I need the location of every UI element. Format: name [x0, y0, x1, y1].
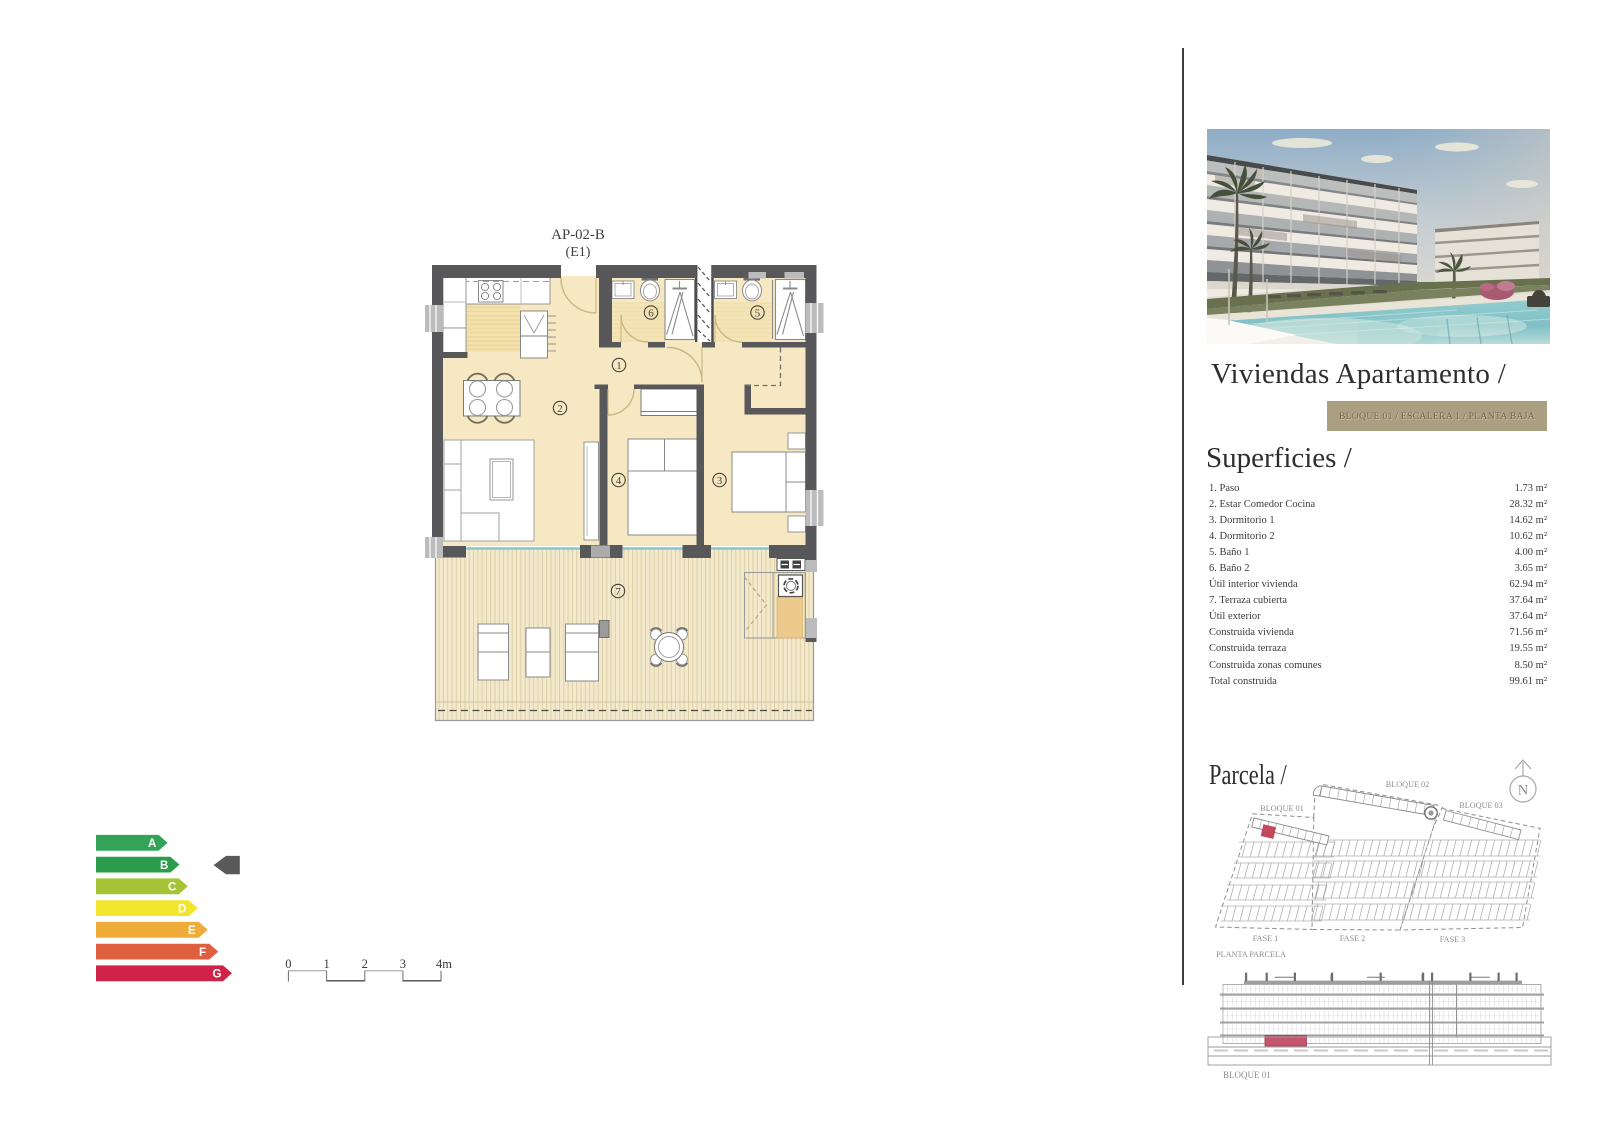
svg-text:4: 4: [616, 475, 622, 487]
svg-text:5: 5: [755, 308, 761, 320]
svg-text:FASE 2: FASE 2: [1340, 934, 1366, 943]
svg-text:F: F: [199, 947, 206, 959]
svg-text:D: D: [178, 903, 186, 915]
svg-text:3: 3: [717, 475, 723, 487]
svg-text:C: C: [168, 882, 176, 894]
svg-text:AP-02-B: AP-02-B: [551, 227, 605, 243]
svg-text:PLANTA PARCELA: PLANTA PARCELA: [1216, 950, 1286, 959]
svg-text:BLOQUE 01: BLOQUE 01: [1223, 1070, 1271, 1080]
svg-text:N: N: [1518, 783, 1529, 799]
svg-text:1: 1: [616, 360, 622, 372]
svg-text:B: B: [160, 860, 168, 872]
svg-text:4m: 4m: [436, 957, 452, 971]
svg-text:7: 7: [615, 586, 621, 598]
svg-text:1: 1: [323, 957, 329, 971]
svg-text:BLOQUE 03: BLOQUE 03: [1459, 801, 1502, 810]
svg-text:E: E: [188, 925, 196, 937]
svg-text:(E1): (E1): [566, 245, 591, 260]
svg-text:A: A: [148, 838, 156, 850]
svg-text:3: 3: [400, 957, 406, 971]
svg-text:FASE 1: FASE 1: [1253, 934, 1279, 943]
svg-text:BLOQUE 01: BLOQUE 01: [1260, 804, 1303, 813]
svg-text:BLOQUE 02: BLOQUE 02: [1386, 780, 1429, 789]
svg-text:2: 2: [557, 403, 563, 415]
svg-text:G: G: [213, 969, 222, 981]
svg-text:0: 0: [285, 957, 291, 971]
svg-text:2: 2: [362, 957, 368, 971]
svg-text:FASE 3: FASE 3: [1440, 935, 1466, 944]
svg-text:6: 6: [648, 308, 654, 320]
